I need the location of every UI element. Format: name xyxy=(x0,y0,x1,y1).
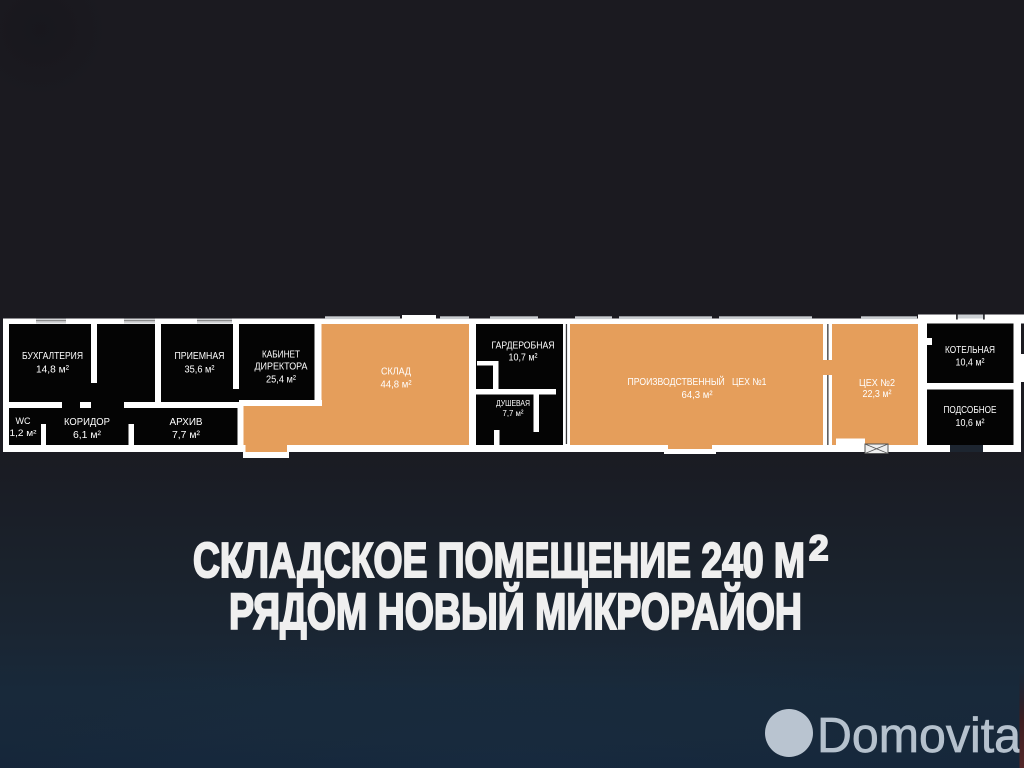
svg-text:ДУШЕВАЯ: ДУШЕВАЯ xyxy=(496,398,530,408)
svg-text:БУХГАЛТЕРИЯ: БУХГАЛТЕРИЯ xyxy=(22,351,83,362)
svg-text:2: 2 xyxy=(809,529,828,568)
svg-text:ПРИЕМНАЯ: ПРИЕМНАЯ xyxy=(175,351,225,362)
svg-text:Domovita: Domovita xyxy=(817,709,1022,763)
svg-text:6,1 м²: 6,1 м² xyxy=(73,430,102,441)
svg-text:СКЛАДСКОЕ ПОМЕЩЕНИЕ 240 М: СКЛАДСКОЕ ПОМЕЩЕНИЕ 240 М xyxy=(193,534,805,588)
svg-text:КОРИДОР: КОРИДОР xyxy=(64,417,110,428)
svg-text:КОТЕЛЬНАЯ: КОТЕЛЬНАЯ xyxy=(945,345,995,356)
svg-text:14,8 м²: 14,8 м² xyxy=(36,365,70,376)
svg-text:ПРОИЗВОДСТВЕННЫЙ ЦЕХ №1: ПРОИЗВОДСТВЕННЫЙ ЦЕХ №1 xyxy=(628,375,767,388)
svg-text:ПОДСОБНОЕ: ПОДСОБНОЕ xyxy=(944,405,997,416)
svg-text:АРХИВ: АРХИВ xyxy=(170,417,203,428)
svg-text:64,3 м²: 64,3 м² xyxy=(682,390,714,401)
svg-text:РЯДОМ НОВЫЙ МИКРОРАЙОН: РЯДОМ НОВЫЙ МИКРОРАЙОН xyxy=(229,582,802,640)
svg-text:10,6 м²: 10,6 м² xyxy=(956,418,986,429)
svg-text:22,3 м²: 22,3 м² xyxy=(863,389,893,400)
svg-text:10,4 м²: 10,4 м² xyxy=(956,358,986,369)
svg-text:КАБИНЕТ: КАБИНЕТ xyxy=(262,350,300,361)
svg-text:7,7 м²: 7,7 м² xyxy=(172,430,201,441)
svg-text:44,8 м²: 44,8 м² xyxy=(381,380,413,391)
svg-text:ГАРДЕРОБНАЯ: ГАРДЕРОБНАЯ xyxy=(492,341,555,352)
svg-text:7,7 м²: 7,7 м² xyxy=(503,408,524,418)
svg-text:ЦЕХ №2: ЦЕХ №2 xyxy=(859,378,895,389)
svg-text:35,6 м²: 35,6 м² xyxy=(185,365,216,376)
svg-text:10,7 м²: 10,7 м² xyxy=(509,353,539,364)
svg-text:СКЛАД: СКЛАД xyxy=(381,367,411,378)
svg-text:ДИРЕКТОРА: ДИРЕКТОРА xyxy=(255,362,308,373)
svg-text:1,2 м²: 1,2 м² xyxy=(10,428,37,438)
svg-text:WC: WC xyxy=(16,416,31,426)
svg-text:25,4 м²: 25,4 м² xyxy=(266,375,297,386)
